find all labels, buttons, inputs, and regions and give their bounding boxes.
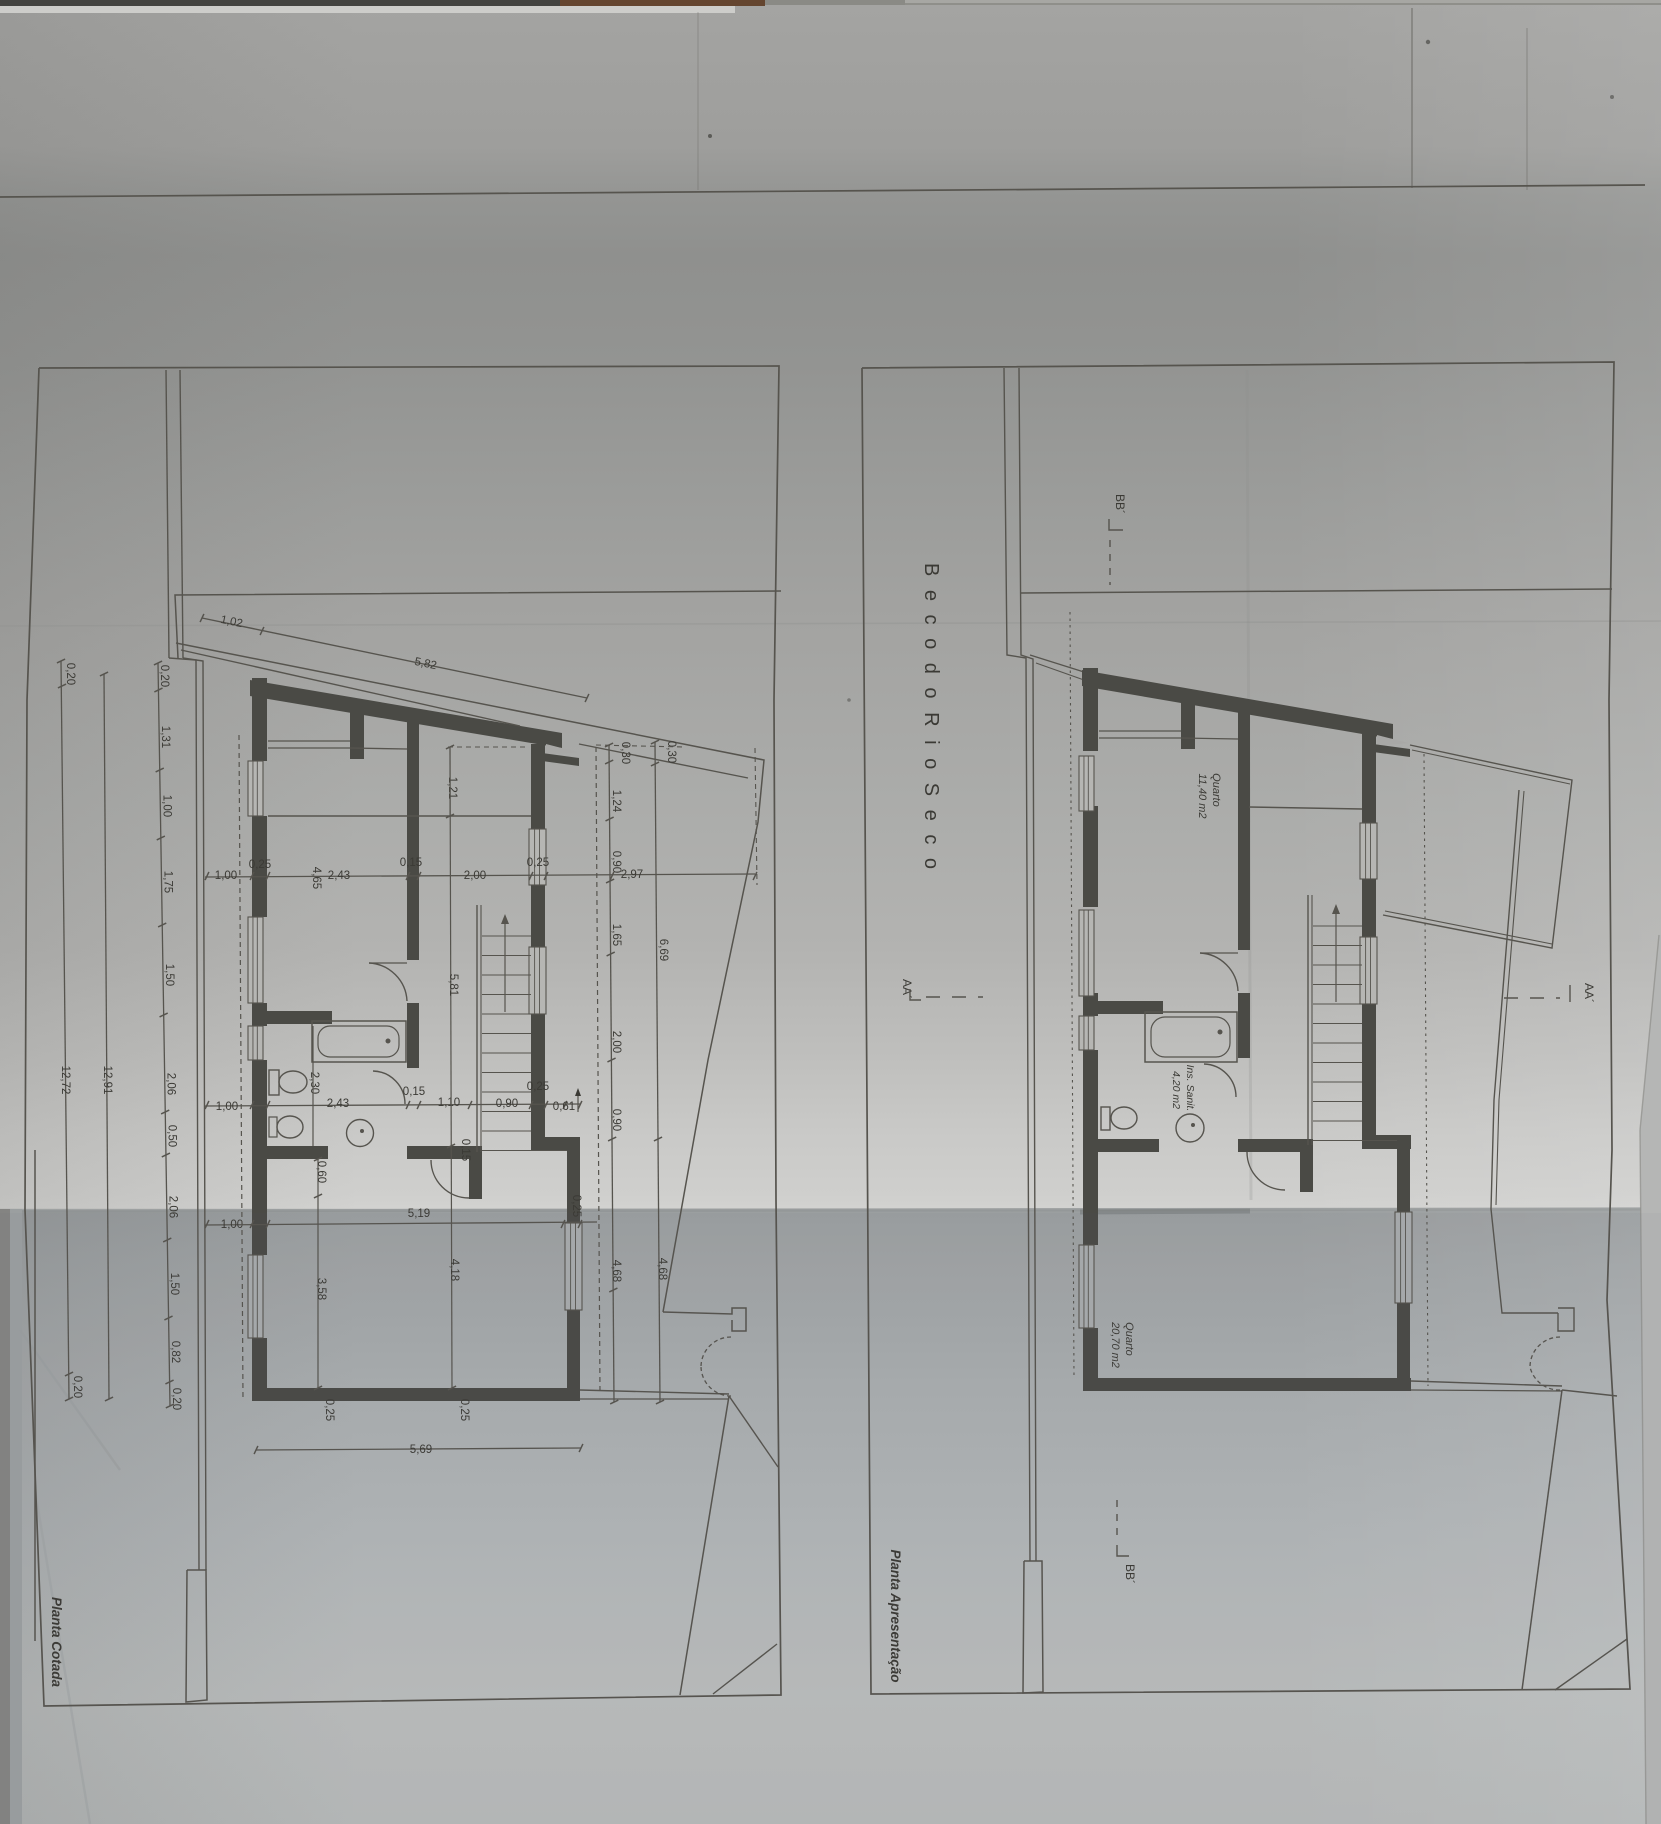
svg-text:6,69: 6,69	[657, 939, 669, 961]
svg-text:1,31: 1,31	[159, 726, 171, 748]
svg-text:12,91: 12,91	[101, 1066, 113, 1095]
svg-text:1,00: 1,00	[216, 1101, 238, 1113]
svg-text:0,60: 0,60	[315, 1161, 327, 1183]
svg-text:1,21: 1,21	[446, 777, 458, 799]
svg-text:0,50: 0,50	[166, 1125, 178, 1147]
svg-text:4,65: 4,65	[310, 867, 322, 889]
svg-text:1,50: 1,50	[163, 964, 175, 986]
svg-text:2,00: 2,00	[464, 870, 486, 882]
svg-text:2,43: 2,43	[327, 1098, 349, 1110]
svg-text:2,00: 2,00	[610, 1031, 622, 1053]
svg-text:0,20: 0,20	[158, 665, 170, 687]
svg-text:1,10: 1,10	[438, 1097, 460, 1109]
svg-text:1,24: 1,24	[610, 790, 622, 813]
svg-text:0,15: 0,15	[403, 1086, 425, 1098]
svg-text:0,15: 0,15	[400, 857, 422, 869]
svg-text:12,72: 12,72	[59, 1066, 71, 1095]
svg-text:0,90: 0,90	[610, 1109, 622, 1131]
svg-text:B e c o d o R i o S e c: B e c o d o R i o S e c o	[920, 563, 942, 873]
svg-text:2,43: 2,43	[328, 870, 350, 882]
svg-text:Ins. Sanit.: Ins. Sanit.	[1184, 1065, 1196, 1112]
svg-text:0,61: 0,61	[553, 1101, 575, 1113]
svg-text:BB´: BB´	[1113, 494, 1127, 514]
svg-text:4,20 m2: 4,20 m2	[1170, 1071, 1182, 1109]
svg-text:0,25: 0,25	[527, 1081, 549, 1093]
svg-text:0,30: 0,30	[665, 741, 677, 763]
svg-text:5,81: 5,81	[447, 974, 459, 996]
svg-text:2,06: 2,06	[165, 1073, 177, 1095]
svg-text:2,97: 2,97	[621, 869, 643, 881]
svg-text:0,25: 0,25	[527, 857, 549, 869]
svg-text:1,00: 1,00	[215, 870, 237, 882]
svg-text:11,40 m2: 11,40 m2	[1196, 773, 1208, 818]
svg-text:0,90: 0,90	[610, 851, 622, 873]
svg-text:1,65: 1,65	[610, 924, 622, 946]
svg-text:0,90: 0,90	[496, 1098, 518, 1110]
svg-text:2,30: 2,30	[308, 1072, 320, 1094]
svg-text:Quarto: Quarto	[1210, 773, 1222, 807]
svg-text:0,25: 0,25	[249, 859, 271, 871]
svg-text:1,00: 1,00	[160, 795, 172, 817]
svg-text:AA´: AA´	[1582, 983, 1596, 1003]
svg-text:0,15: 0,15	[459, 1139, 471, 1161]
svg-text:0,20: 0,20	[64, 663, 76, 685]
svg-text:AA´: AA´	[900, 979, 914, 999]
svg-text:1,75: 1,75	[162, 871, 174, 893]
